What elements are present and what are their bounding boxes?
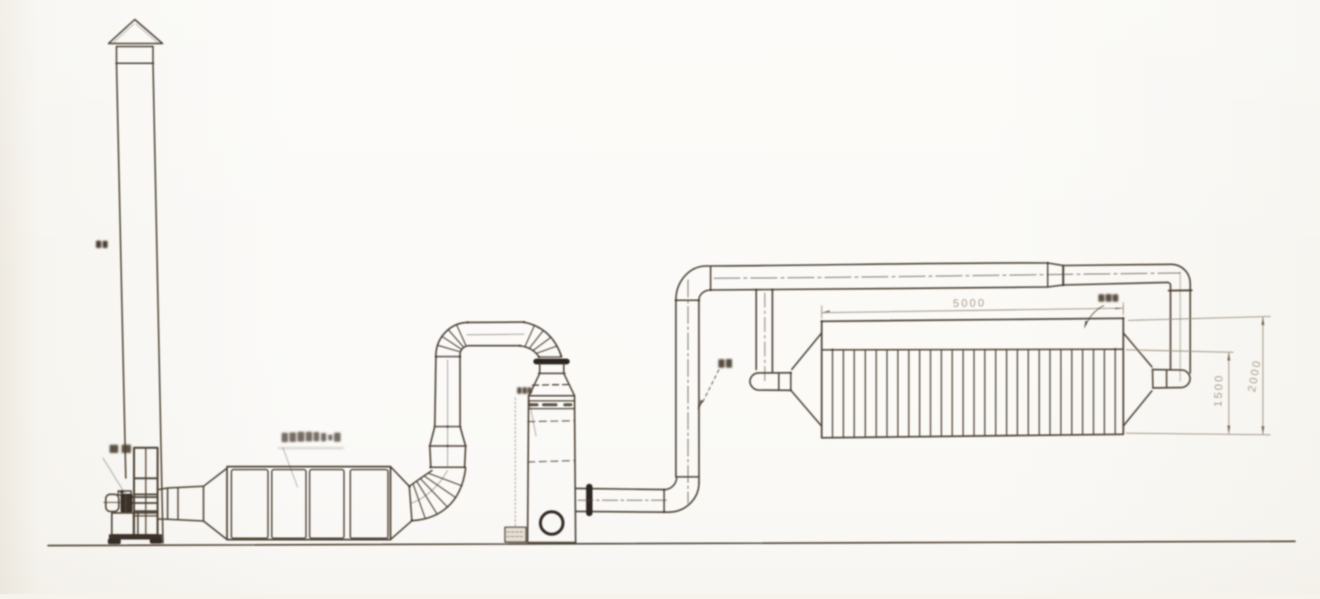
- svg-text:1500: 1500: [1213, 373, 1226, 407]
- svg-text:5000: 5000: [953, 297, 986, 310]
